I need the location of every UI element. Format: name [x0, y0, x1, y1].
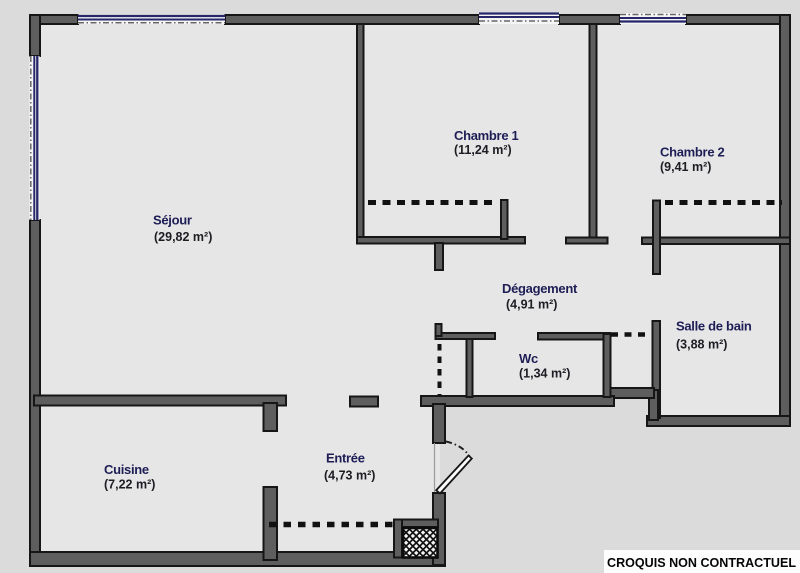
svg-text:Wc: Wc [519, 351, 538, 366]
svg-text:(7,22 m²): (7,22 m²) [104, 478, 155, 492]
svg-text:(3,88 m²): (3,88 m²) [676, 338, 727, 352]
svg-text:CROQUIS NON CONTRACTUEL: CROQUIS NON CONTRACTUEL [607, 556, 796, 570]
svg-text:Entrée: Entrée [326, 451, 365, 466]
svg-text:(29,82 m²): (29,82 m²) [154, 230, 212, 244]
svg-text:Dégagement: Dégagement [502, 281, 578, 296]
svg-text:Chambre 1: Chambre 1 [454, 128, 519, 143]
svg-text:(4,73 m²): (4,73 m²) [324, 469, 375, 483]
svg-text:Chambre 2: Chambre 2 [660, 145, 725, 160]
svg-text:Salle de bain: Salle de bain [676, 319, 752, 334]
svg-text:Séjour: Séjour [153, 213, 192, 228]
svg-text:(9,41 m²): (9,41 m²) [660, 160, 711, 174]
svg-text:(1,34 m²): (1,34 m²) [519, 367, 570, 381]
svg-text:(4,91 m²): (4,91 m²) [506, 298, 557, 312]
svg-text:Cuisine: Cuisine [104, 462, 149, 477]
svg-text:(11,24 m²): (11,24 m²) [454, 143, 512, 157]
